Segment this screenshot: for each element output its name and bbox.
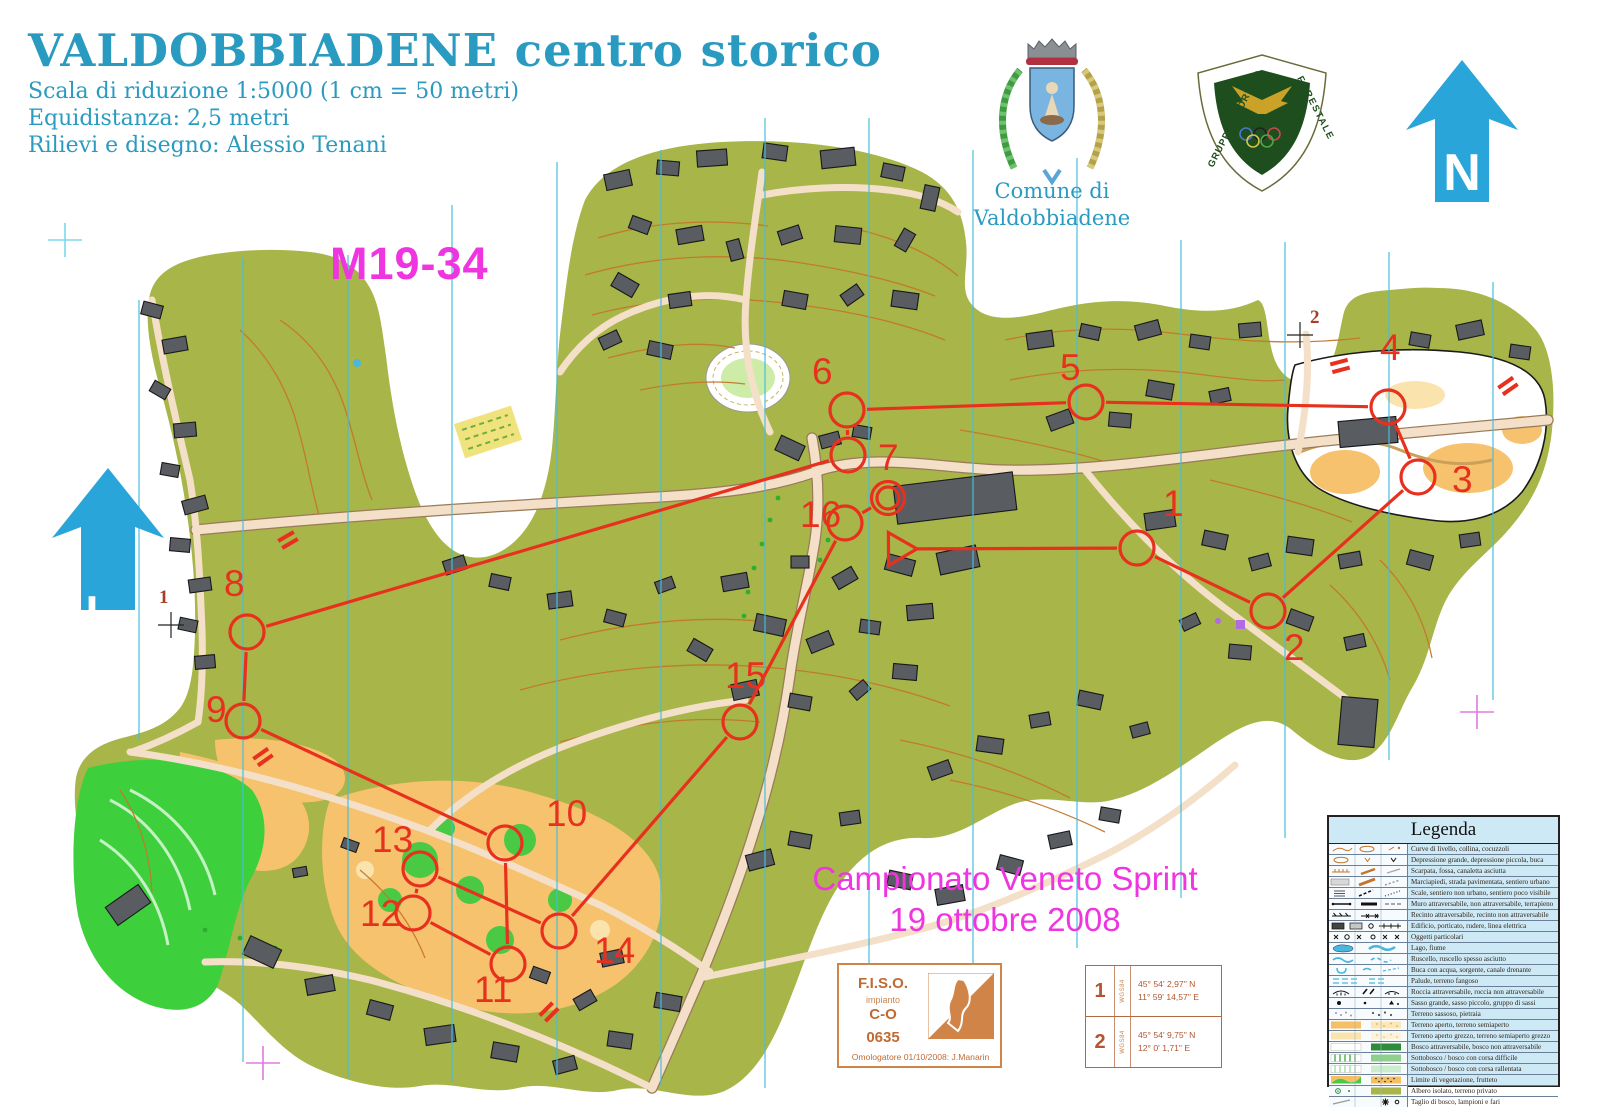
course-leg: [416, 889, 417, 893]
building: [788, 831, 812, 849]
building: [194, 655, 215, 670]
building: [656, 160, 679, 176]
control-number: 1: [1163, 483, 1184, 524]
legend-row: Oggetti particolari: [1329, 931, 1558, 942]
fiso-discipline: C-O: [843, 1006, 923, 1023]
legend-symbol: [1329, 1097, 1407, 1107]
building: [424, 1024, 456, 1045]
legend-symbol: [1329, 877, 1407, 887]
legend-symbol: [1329, 1064, 1407, 1074]
legend-symbol: [1329, 954, 1407, 964]
legend-row: Palude, terreno fangoso: [1329, 975, 1558, 986]
legend-label: Taglio di bosco, lampioni e fari: [1407, 1097, 1558, 1107]
building: [1029, 712, 1051, 728]
legend-label: Terreno sassoso, pietraia: [1407, 1009, 1558, 1019]
building: [1286, 536, 1314, 555]
legend-label: Palude, terreno fangoso: [1407, 976, 1558, 986]
legend-row: Edificio, porticato, rudere, linea elett…: [1329, 920, 1558, 931]
legend-row: Muro attraversabile, non attraversabile,…: [1329, 898, 1558, 909]
registration-cross: [1460, 695, 1494, 729]
legend-symbol: [1329, 976, 1407, 986]
building: [1099, 807, 1121, 823]
legend-label: Roccia attraversabile, roccia non attrav…: [1407, 987, 1558, 997]
svg-text:1: 1: [159, 587, 169, 608]
legend-label: Buca con acqua, sorgente, canale drenant…: [1407, 965, 1558, 975]
legend-label: Recinto attraversabile, recinto non attr…: [1407, 910, 1558, 920]
legend-title: Legenda: [1329, 817, 1558, 844]
legend-label: Depressione grande, depressione piccola,…: [1407, 855, 1558, 865]
building: [834, 226, 862, 245]
fiso-number: 0635: [843, 1029, 923, 1046]
building: [788, 693, 812, 711]
municipality-name: Comune di Valdobbiadene: [952, 178, 1152, 232]
building: [173, 422, 196, 438]
legend-symbol: [1329, 844, 1407, 854]
legend-symbol: [1329, 888, 1407, 898]
course-leg: [916, 548, 1117, 549]
course-leg: [244, 652, 246, 701]
legend-symbol: [1329, 1042, 1407, 1052]
coordinate-datum: WGS84: [1114, 1017, 1131, 1067]
legend-row: Limite di vegetazione, frutteto: [1329, 1074, 1558, 1085]
coordinate-id: 2: [1086, 1031, 1114, 1054]
legend-label: Albero isolato, terreno privato: [1407, 1086, 1558, 1096]
control-number: 2: [1284, 627, 1305, 668]
control-number: 8: [224, 563, 245, 604]
legend-label: Scale, sentiero non urbano, sentiero poc…: [1407, 888, 1558, 898]
coordinate-datum: WGS84: [1114, 966, 1131, 1016]
control-number: 11: [474, 969, 512, 1010]
control-number: 6: [812, 351, 833, 392]
coordinate-row: 2 WGS84 45° 54' 9,75" N 12° 0' 1,71" E: [1086, 1016, 1221, 1067]
legend-symbol: [1329, 932, 1407, 942]
legend-row: Albero isolato, terreno privato: [1329, 1085, 1558, 1096]
legend-row: Ruscello, ruscello spesso asciutto: [1329, 953, 1558, 964]
course-leg: [506, 863, 508, 944]
building: [1338, 551, 1362, 569]
legend-row: Terreno sassoso, pietraia: [1329, 1008, 1558, 1019]
building: [906, 603, 933, 620]
building: [1238, 322, 1261, 338]
control-number: 9: [206, 689, 227, 730]
municipal-crest: [1003, 39, 1102, 182]
legend-row: Terreno aperto, terreno semiaperto: [1329, 1019, 1558, 1030]
legend-row: Sottobosco / bosco con corsa difficile: [1329, 1052, 1558, 1063]
legend-rows: Curve di livello, collina, cocuzzoliDepr…: [1329, 844, 1558, 1107]
building: [1338, 697, 1378, 748]
legend-row: Scale, sentiero non urbano, sentiero poc…: [1329, 887, 1558, 898]
control-number: 15: [725, 655, 766, 696]
legend-symbol: [1329, 1075, 1407, 1085]
legend-row: Sasso grande, sasso piccolo, gruppo di s…: [1329, 997, 1558, 1008]
legend-symbol: [1329, 1020, 1407, 1030]
building: [891, 290, 919, 309]
building: [1409, 332, 1431, 348]
legend-label: Curve di livello, collina, cocuzzoli: [1407, 844, 1558, 854]
legend-row: Depressione grande, depressione piccola,…: [1329, 854, 1558, 865]
building: [976, 736, 1004, 754]
building: [1048, 831, 1072, 849]
credits-line: Rilievi e disegno: Alessio Tenani: [28, 133, 882, 158]
legend-symbol: [1329, 943, 1407, 953]
north-label: N: [1443, 144, 1481, 202]
fiso-italy-logo: [928, 973, 994, 1039]
coordinate-row: 1 WGS84 45° 54' 2,97" N 11° 59' 14,57" E: [1086, 966, 1221, 1016]
legend-row: Marciapiedi, strada pavimentata, sentier…: [1329, 876, 1558, 887]
legend-symbol: [1329, 899, 1407, 909]
legend-row: Recinto attraversabile, recinto non attr…: [1329, 909, 1558, 920]
building: [1228, 644, 1251, 660]
legend-symbol: [1329, 1031, 1407, 1041]
course-class-label: M19-34: [330, 238, 489, 290]
legend-symbol: [1329, 1086, 1407, 1096]
building: [859, 619, 881, 635]
legend-label: Edificio, porticato, rudere, linea elett…: [1407, 921, 1558, 931]
building: [169, 538, 190, 553]
scale-line: Scala di riduzione 1:5000 (1 cm = 50 met…: [28, 79, 882, 104]
building: [791, 556, 809, 568]
legend-label: Muro attraversabile, non attraversabile,…: [1407, 899, 1558, 909]
legend-label: Sasso grande, sasso piccolo, gruppo di s…: [1407, 998, 1558, 1008]
legend-symbol: [1329, 965, 1407, 975]
legend-row: Buca con acqua, sorgente, canale drenant…: [1329, 964, 1558, 975]
legend-label: Marciapiedi, strada pavimentata, sentier…: [1407, 877, 1558, 887]
building: [188, 577, 212, 593]
coordinate-id: 1: [1086, 980, 1114, 1003]
control-number: 7: [878, 437, 899, 478]
map-title: VALDOBBIADENE centro storico: [28, 24, 882, 77]
title-block: VALDOBBIADENE centro storico Scala di ri…: [28, 24, 882, 158]
legend-label: Sottobosco / bosco con corsa rallentata: [1407, 1064, 1558, 1074]
fiso-footer: Omologatore 01/10/2008: J.Manarin: [842, 1052, 999, 1062]
legend-label: Lago, fiume: [1407, 943, 1558, 953]
fiso-certification-box: F.I.S.O. impianto C-O 0635 Omologatore 0…: [837, 963, 1002, 1068]
legend-row: Lago, fiume: [1329, 942, 1558, 953]
registration-cross-numbered: 1: [158, 587, 184, 638]
registration-cross: [246, 1046, 280, 1080]
legend-row: Taglio di bosco, lampioni e fari: [1329, 1096, 1558, 1107]
control-number: 3: [1452, 459, 1473, 500]
building: [160, 463, 180, 478]
building: [1026, 330, 1054, 349]
legend-label: Terreno aperto, terreno semiaperto: [1407, 1020, 1558, 1030]
building: [668, 292, 692, 309]
legend-symbol: [1329, 866, 1407, 876]
legend-label: Scarpata, fossa, canaletta asciutta: [1407, 866, 1558, 876]
legend-row: Roccia attraversabile, roccia non attrav…: [1329, 986, 1558, 997]
fiso-impianto: impianto: [843, 995, 923, 1005]
legend-row: Bosco attraversabile, bosco non attraver…: [1329, 1041, 1558, 1052]
control-number: 10: [546, 793, 587, 834]
building: [892, 663, 917, 680]
fiso-org: F.I.S.O.: [843, 975, 923, 992]
forestale-badge: GRUPPO SPORTIVO FORESTALE: [1198, 55, 1336, 191]
legend-row: Curve di livello, collina, cocuzzoli: [1329, 844, 1558, 854]
legend-label: Bosco attraversabile, bosco non attraver…: [1407, 1042, 1558, 1052]
coordinate-values: 45° 54' 9,75" N 12° 0' 1,71" E: [1131, 1029, 1221, 1055]
control-number: 16: [800, 494, 841, 535]
registration-cross: [48, 223, 82, 257]
control-number: 13: [372, 819, 413, 860]
legend-symbol: [1329, 910, 1407, 920]
building: [547, 591, 573, 609]
building: [607, 1031, 633, 1049]
event-title: Campionato Veneto Sprint 19 ottobre 2008: [780, 858, 1230, 940]
legend-row: Sottobosco / bosco con corsa rallentata: [1329, 1063, 1558, 1074]
legend-symbol: [1329, 998, 1407, 1008]
legend-symbol: [1329, 855, 1407, 865]
orienteering-map-page: { "header": { "title": "VALDOBBIADENE", …: [0, 0, 1600, 1115]
legend-row: Terreno aperto grezzo, terreno semiapert…: [1329, 1030, 1558, 1041]
north-label: N: [61, 586, 99, 644]
control-number: 4: [1380, 327, 1401, 368]
legend-label: Sottobosco / bosco con corsa difficile: [1407, 1053, 1558, 1063]
legend-label: Limite di vegetazione, frutteto: [1407, 1075, 1558, 1085]
legend-symbol: [1329, 921, 1407, 931]
legend-symbol: [1329, 987, 1407, 997]
legend: Legenda Curve di livello, collina, cocuz…: [1327, 815, 1560, 1087]
legend-symbol: [1329, 1053, 1407, 1063]
building: [292, 866, 307, 877]
legend-row: Scarpata, fossa, canaletta asciutta: [1329, 865, 1558, 876]
control-number: 12: [360, 893, 401, 934]
control-number: 14: [594, 930, 635, 971]
coordinate-values: 45° 54' 2,97" N 11° 59' 14,57" E: [1131, 978, 1221, 1004]
building: [1108, 412, 1131, 428]
legend-label: Oggetti particolari: [1407, 932, 1558, 942]
legend-label: Ruscello, ruscello spesso asciutto: [1407, 954, 1558, 964]
coordinates-box: 1 WGS84 45° 54' 2,97" N 11° 59' 14,57" E…: [1085, 965, 1222, 1068]
legend-label: Terreno aperto grezzo, terreno semiapert…: [1407, 1031, 1558, 1041]
legend-symbol: [1329, 1009, 1407, 1019]
building: [1459, 532, 1481, 548]
equidistance-line: Equidistanza: 2,5 metri: [28, 106, 882, 131]
svg-text:2: 2: [1310, 307, 1320, 328]
building: [839, 810, 861, 826]
building: [1189, 334, 1211, 350]
building: [1509, 344, 1531, 360]
control-number: 5: [1060, 347, 1081, 388]
